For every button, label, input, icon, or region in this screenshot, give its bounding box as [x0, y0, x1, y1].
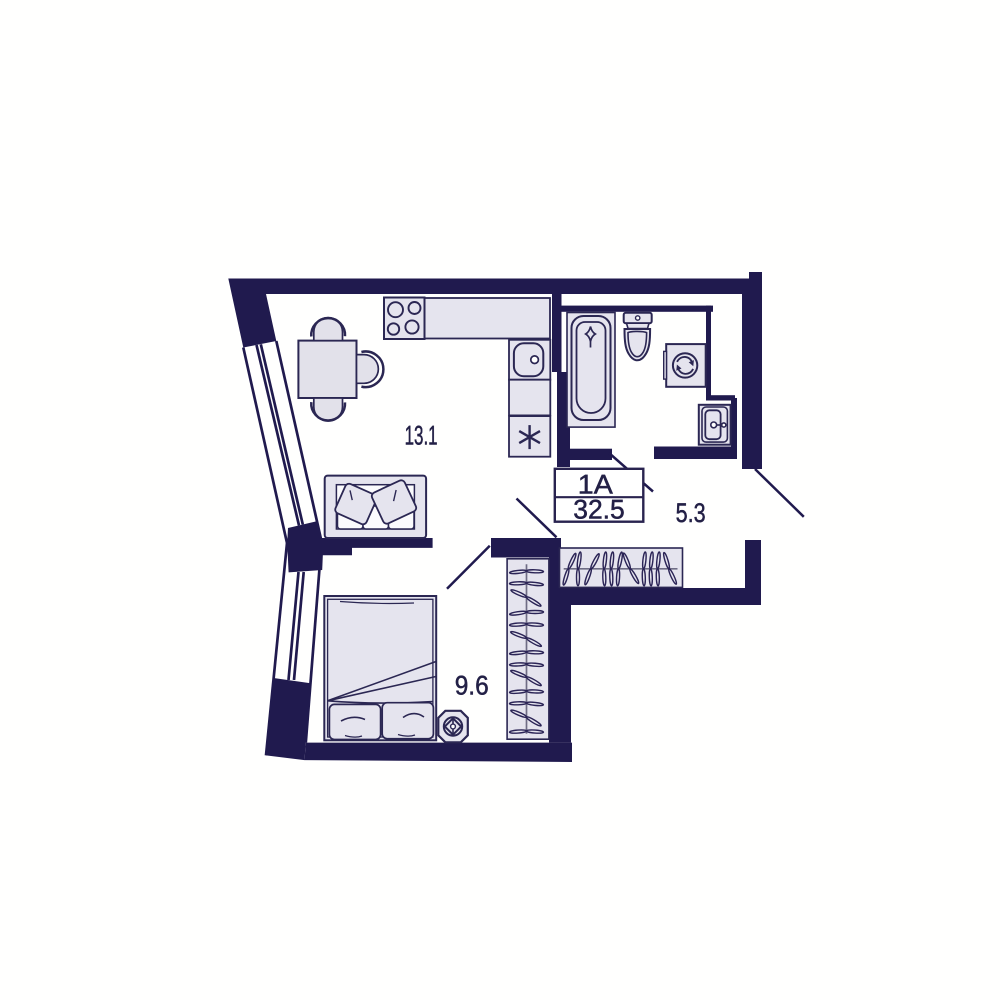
svg-text:13.1: 13.1 — [405, 420, 438, 450]
svg-text:9.6: 9.6 — [455, 670, 489, 700]
svg-text:5.3: 5.3 — [676, 498, 706, 528]
svg-text:32.5: 32.5 — [573, 494, 625, 524]
